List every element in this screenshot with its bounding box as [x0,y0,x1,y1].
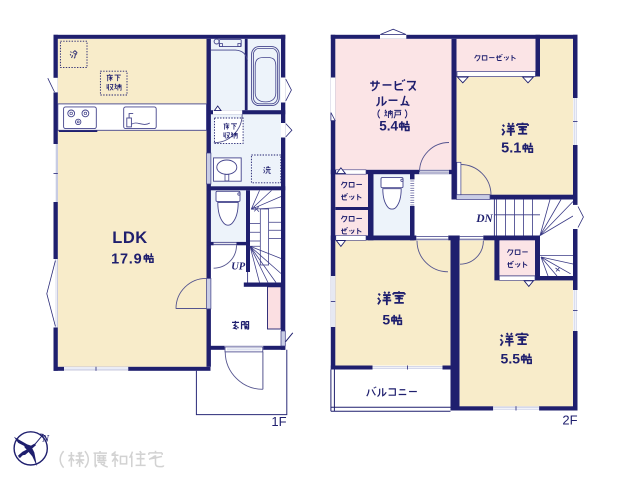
svg-text:5.1: 5.1 [501,141,521,157]
svg-text:DN: DN [475,213,493,225]
svg-text:5.5: 5.5 [501,350,521,366]
svg-text:5: 5 [382,311,390,327]
svg-text:LDK: LDK [112,229,147,247]
svg-text:UP: UP [231,261,246,272]
svg-text:N: N [41,435,50,445]
svg-text:1F: 1F [271,414,286,429]
svg-text:5.4: 5.4 [379,119,398,134]
svg-text:17.9: 17.9 [111,251,142,267]
svg-text:2F: 2F [562,412,577,427]
